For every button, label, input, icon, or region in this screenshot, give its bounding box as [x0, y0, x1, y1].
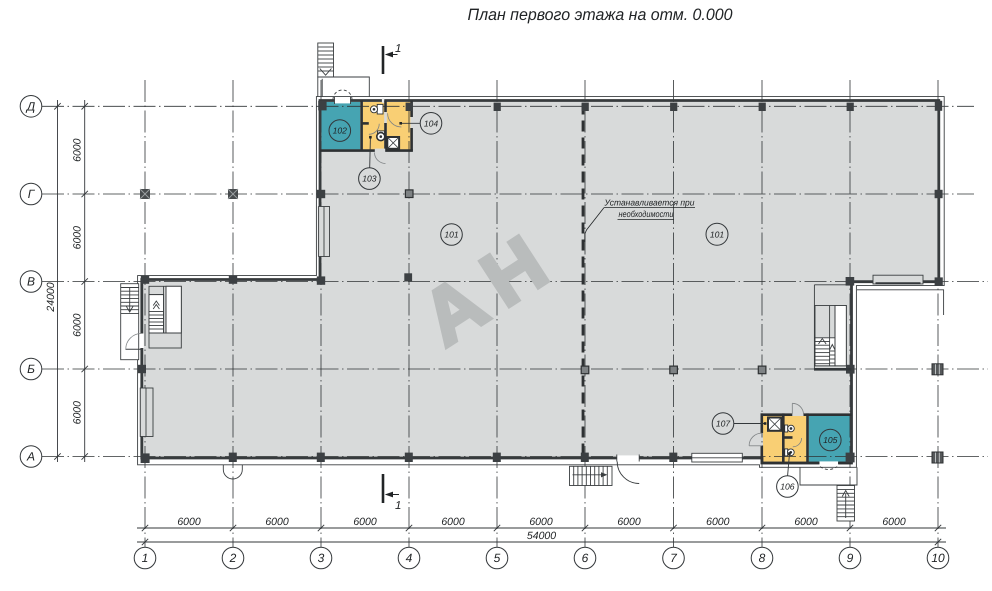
svg-text:6000: 6000	[353, 516, 377, 528]
svg-text:6000: 6000	[72, 226, 84, 250]
svg-text:Устанавливается при: Устанавливается при	[604, 197, 695, 207]
svg-text:6000: 6000	[72, 313, 84, 337]
svg-text:1: 1	[395, 500, 401, 512]
svg-text:107: 107	[716, 419, 732, 429]
svg-text:План первого этажа на отм. 0.0: План первого этажа на отм. 0.000	[468, 6, 734, 24]
svg-text:102: 102	[333, 126, 348, 136]
svg-text:необходимости: необходимости	[619, 209, 674, 219]
svg-text:103: 103	[362, 174, 377, 184]
svg-text:2: 2	[229, 551, 237, 565]
svg-text:101: 101	[444, 230, 459, 240]
svg-text:1: 1	[142, 551, 149, 565]
svg-text:6000: 6000	[441, 516, 465, 528]
svg-text:8: 8	[759, 551, 766, 565]
svg-text:4: 4	[406, 551, 413, 565]
svg-text:6000: 6000	[177, 516, 201, 528]
svg-text:6000: 6000	[794, 516, 818, 528]
svg-text:54000: 54000	[527, 530, 556, 542]
svg-text:6000: 6000	[529, 516, 553, 528]
svg-text:6000: 6000	[617, 516, 641, 528]
svg-text:Г: Г	[28, 187, 36, 201]
svg-text:6000: 6000	[72, 401, 84, 425]
svg-text:105: 105	[823, 435, 838, 445]
svg-text:6: 6	[582, 551, 589, 565]
svg-text:А: А	[26, 450, 35, 464]
svg-text:6000: 6000	[72, 138, 84, 162]
svg-text:5: 5	[494, 551, 501, 565]
svg-text:106: 106	[780, 482, 795, 492]
svg-text:1: 1	[395, 43, 401, 55]
svg-text:24000: 24000	[45, 282, 57, 312]
svg-text:7: 7	[670, 551, 678, 565]
svg-text:6000: 6000	[265, 516, 289, 528]
svg-text:Б: Б	[27, 362, 35, 376]
svg-text:10: 10	[931, 551, 945, 565]
svg-text:6000: 6000	[882, 516, 906, 528]
svg-text:3: 3	[318, 551, 325, 565]
svg-text:9: 9	[847, 551, 854, 565]
svg-text:101: 101	[710, 229, 725, 239]
svg-text:6000: 6000	[706, 516, 730, 528]
svg-text:В: В	[27, 275, 35, 289]
svg-text:Д: Д	[25, 99, 36, 113]
svg-text:104: 104	[424, 118, 439, 128]
